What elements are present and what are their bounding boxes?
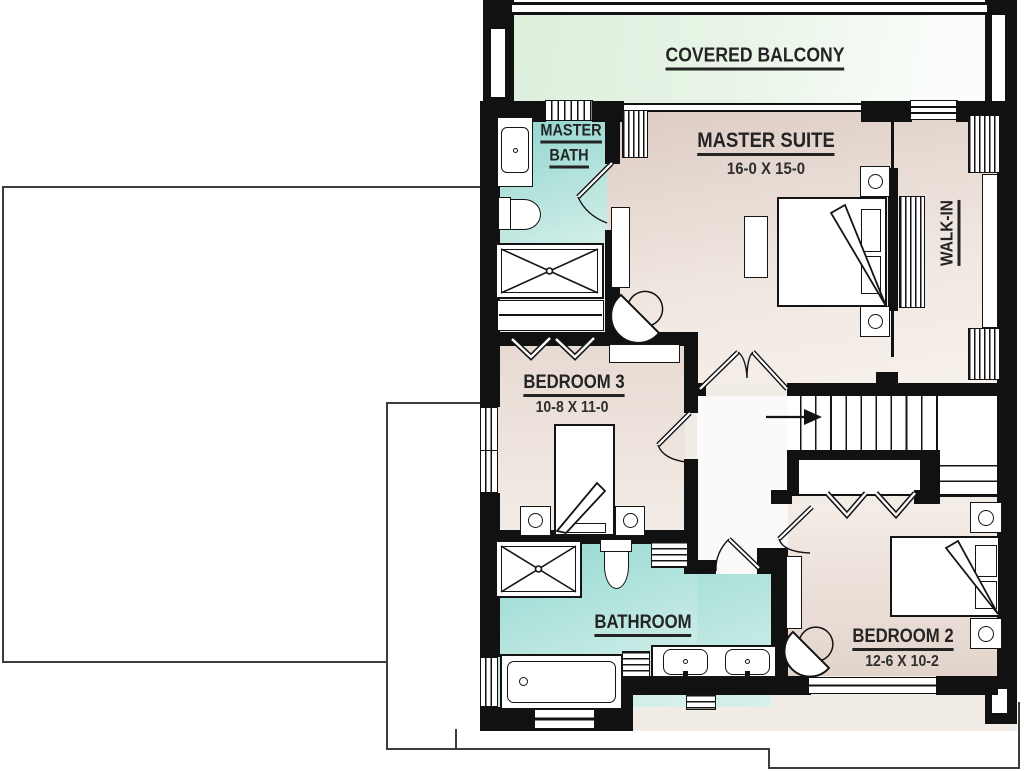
room-label-bedroom2: BEDROOM 2 [852, 626, 953, 648]
room-label-bathroom: BATHROOM [594, 612, 691, 634]
bed-fold [557, 205, 998, 614]
room-label-master-bath: BATH [549, 147, 588, 166]
floor-plan: COVERED BALCONY MASTER SUITE 16-0 X 15-0… [0, 0, 1024, 771]
door-swing [779, 507, 812, 553]
room-label-master-suite: MASTER SUITE [697, 129, 835, 153]
door-swing [578, 163, 612, 223]
shower-glass-lines [501, 249, 598, 592]
down-arrow-icon [766, 409, 822, 425]
room-label-covered-balcony: COVERED BALCONY [666, 45, 845, 68]
door-swing [716, 539, 759, 571]
room-dims-bedroom3: 10-8 X 11-0 [536, 399, 609, 417]
room-dims-bedroom2: 12-6 X 10-2 [865, 653, 939, 671]
room-dims-master-suite: 16-0 X 15-0 [727, 159, 805, 179]
room-label-bedroom3: BEDROOM 3 [523, 372, 624, 394]
door-swing [658, 413, 690, 462]
room-label-walk-in: WALK-IN [937, 200, 958, 266]
room-label-master-bath: MASTER [540, 122, 601, 141]
double-door-swing [700, 352, 787, 389]
hanger-icon [512, 338, 915, 515]
